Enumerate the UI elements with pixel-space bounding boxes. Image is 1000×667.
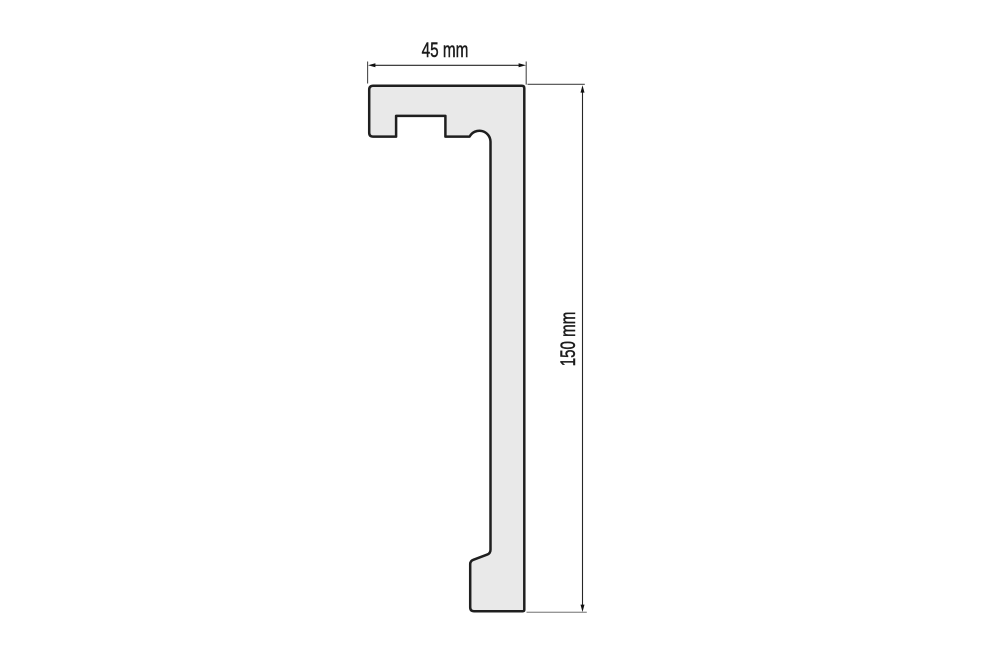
svg-text:150 mm: 150 mm — [555, 312, 579, 367]
svg-text:45 mm: 45 mm — [422, 37, 469, 61]
